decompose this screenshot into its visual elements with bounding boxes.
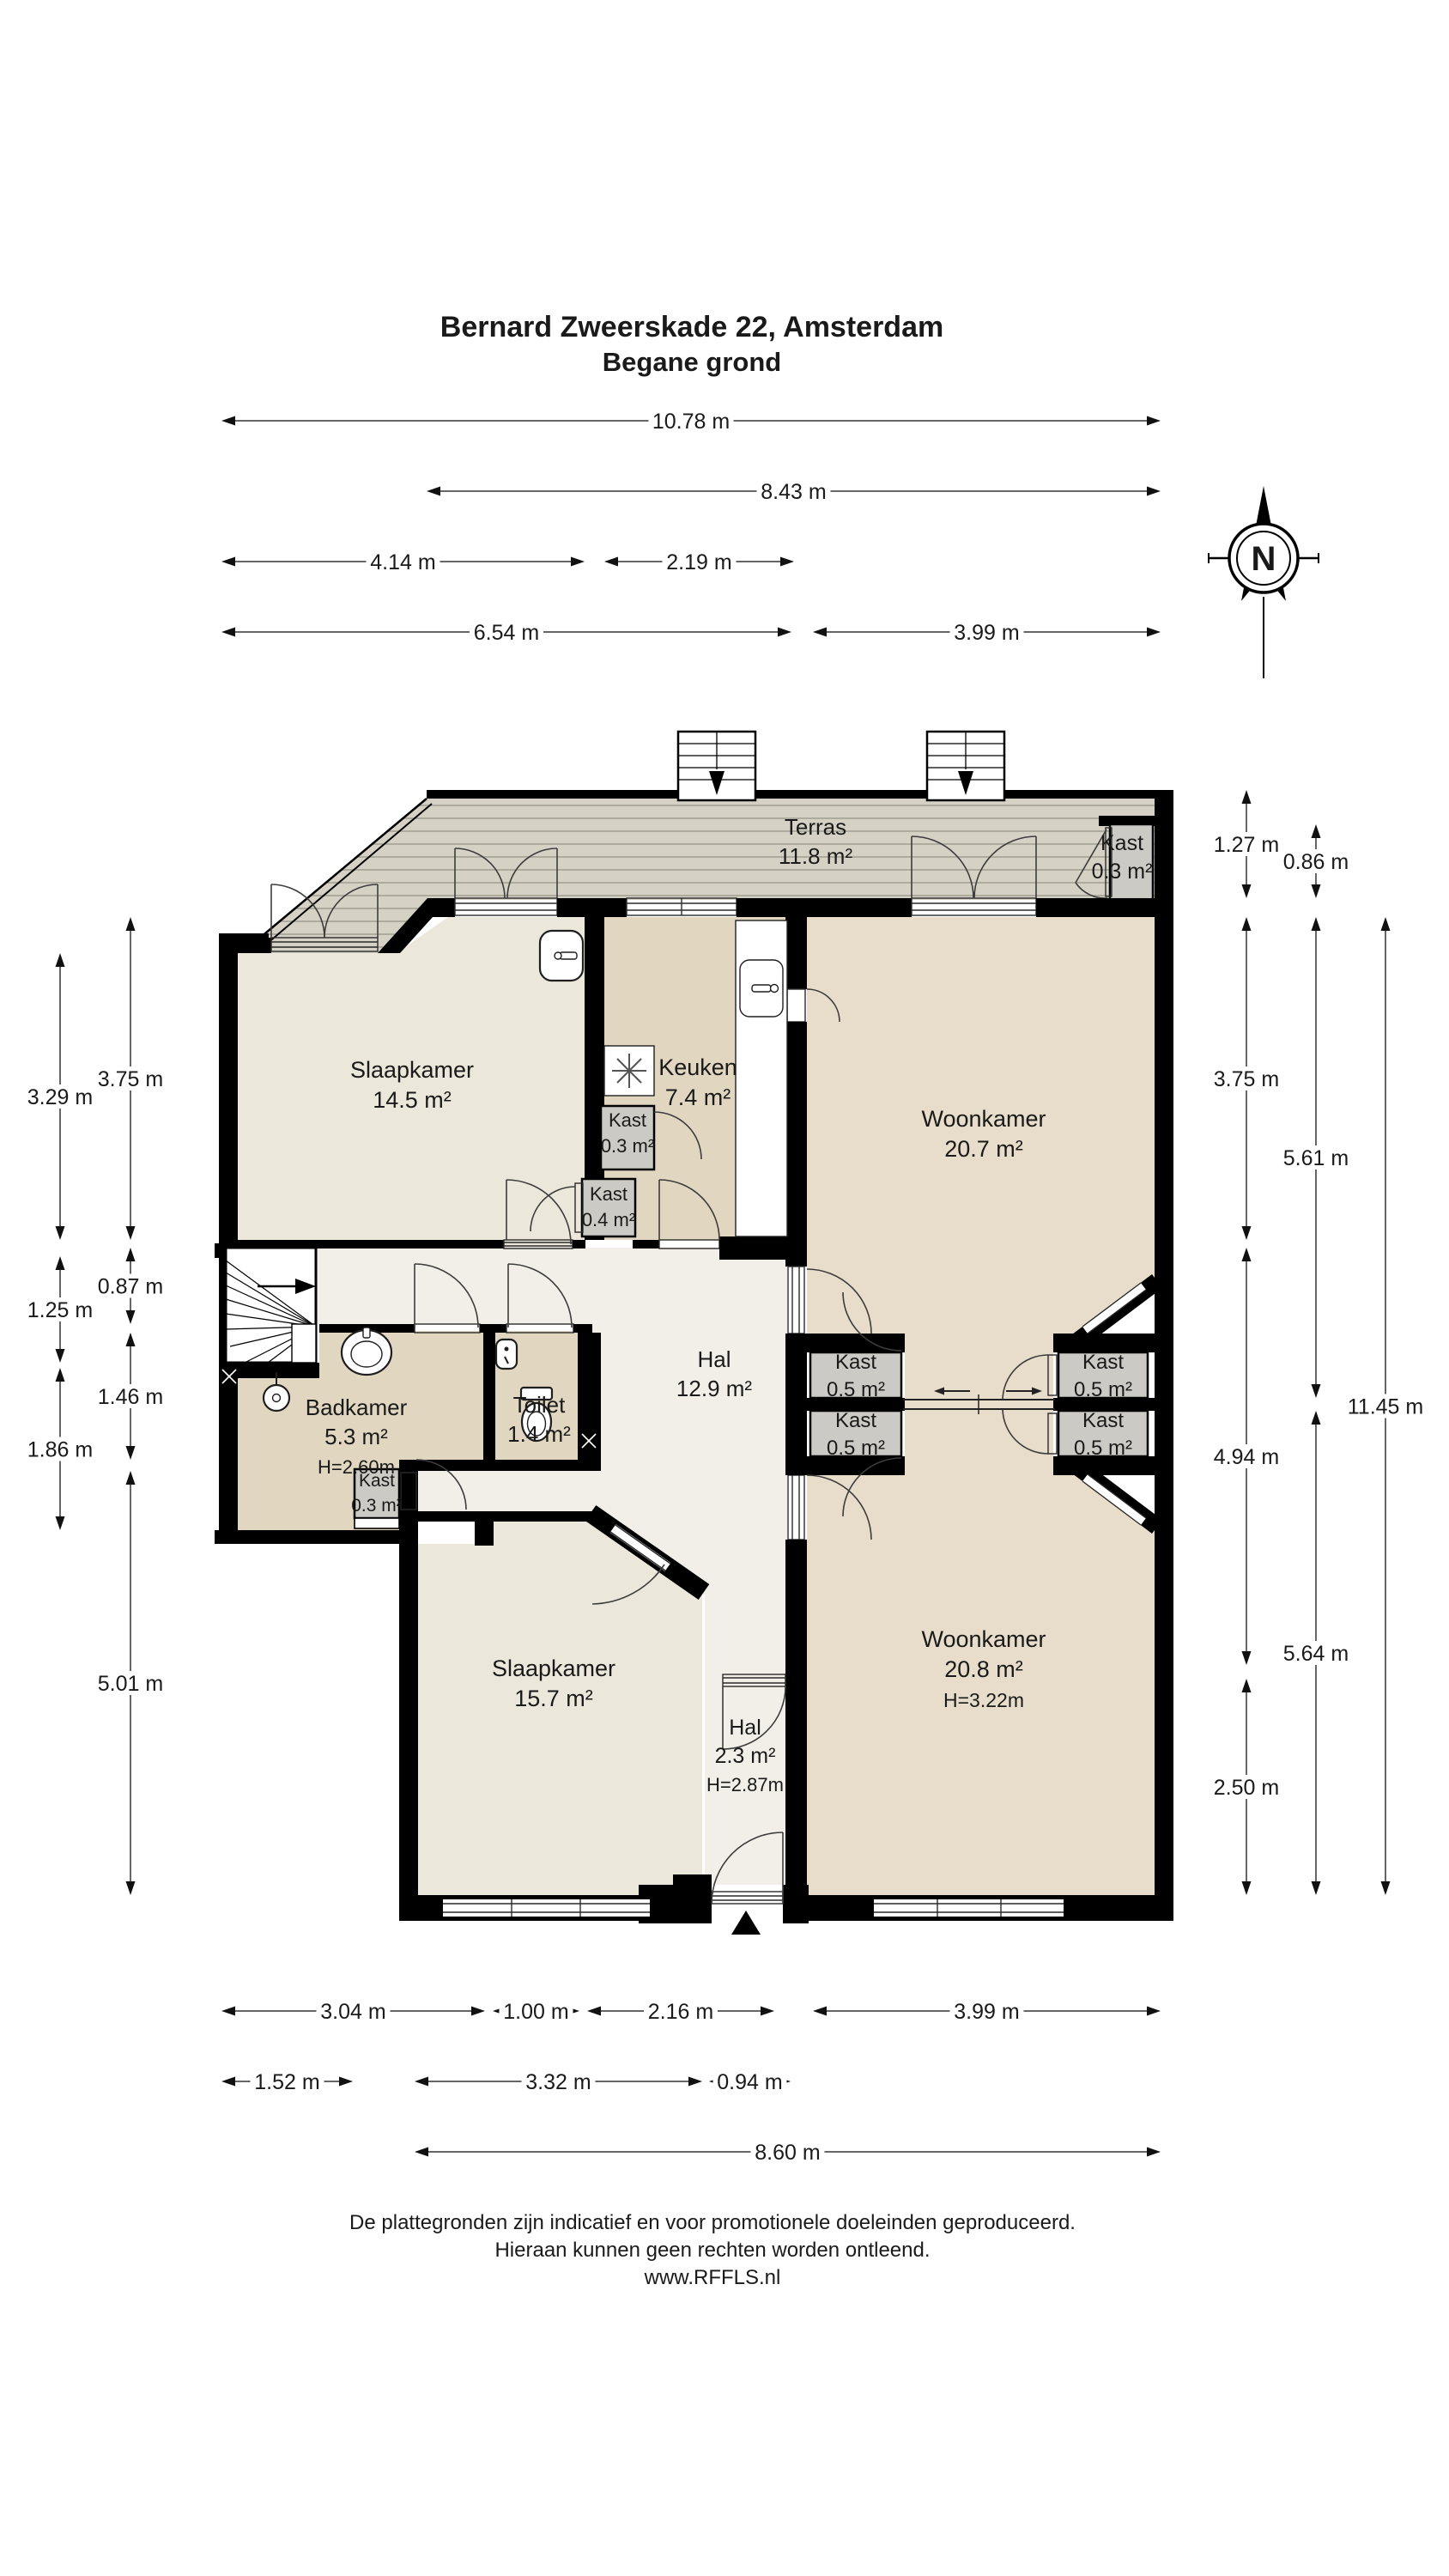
dimension: 6.54 m [221, 620, 791, 645]
room-label-kast-05-links-onder: 0.5 m² [827, 1437, 885, 1460]
dimension: 1.00 m [493, 1999, 579, 2024]
wall-badkamer-toilet [483, 1333, 495, 1460]
slaapkamer-onder-window [443, 1899, 650, 1917]
room-label-kast-05-rechts-boven: 0.5 m² [1074, 1378, 1132, 1401]
dimension: 3.04 m [221, 1999, 485, 2024]
room-label-hal-onder: H=2.87m [706, 1774, 784, 1795]
dimension-label: 0.94 m [717, 2070, 782, 2094]
room-label-kast-05-links-boven: Kast [835, 1351, 876, 1374]
room-label-kast-03-keuken: Kast [609, 1109, 646, 1131]
dimension-label: 5.61 m [1283, 1146, 1349, 1170]
toilet-roll-holder [496, 1340, 517, 1369]
dimension: 5.01 m [94, 1471, 167, 1895]
plan-title: Bernard Zweerskade 22, Amsterdam Begane … [440, 311, 943, 377]
dimension-label: 1.00 m [503, 2000, 568, 2024]
room-label-kast-03-badkamer: Kast [359, 1471, 395, 1491]
terrace-stair-right [927, 732, 1004, 800]
room-label-hal-onder: 2.3 m² [715, 1744, 776, 1768]
room-label-kast-05-rechts-onder: Kast [1082, 1409, 1124, 1432]
footer-line-1: De plattegronden zijn indicatief en voor… [349, 2211, 1076, 2234]
room-label-keuken: 7.4 m² [665, 1084, 731, 1110]
dimension-label: 8.60 m [755, 2141, 820, 2165]
dimension: 3.99 m [813, 620, 1161, 645]
title-address: Bernard Zweerskade 22, Amsterdam [440, 311, 943, 343]
dimension: 1.25 m [23, 1256, 97, 1363]
room-label-kast-03-badkamer: 0.3 m² [351, 1496, 403, 1516]
terrace-stair-left [678, 732, 755, 800]
room-label-hal-onder: Hal [729, 1716, 761, 1740]
dimension: 8.43 m [427, 479, 1161, 504]
room-label-terras: Terras [785, 814, 846, 840]
dimension: 1.27 m [1210, 790, 1283, 898]
hal-woonkamer-onder-door-frame [788, 1475, 804, 1540]
dimension: 2.50 m [1210, 1679, 1283, 1895]
dimension: 3.29 m [23, 953, 97, 1240]
dimension-label: 0.87 m [98, 1275, 163, 1299]
dimension-label: 1.86 m [27, 1438, 93, 1462]
dimension: 1.52 m [221, 2069, 353, 2094]
dimension-label: 1.52 m [254, 2070, 319, 2094]
room-label-slaapkamer-boven: 14.5 m² [373, 1087, 452, 1113]
french-door-sill-bedroom [455, 898, 557, 915]
dimension: 4.94 m [1210, 1248, 1283, 1665]
title-floor: Begane grond [603, 347, 781, 377]
terrace-top-wall [427, 790, 1159, 799]
room-label-woonkamer-onder: 20.8 m² [944, 1656, 1023, 1682]
left-wall [219, 933, 238, 1544]
woonkamer-onder-floor [807, 1470, 1155, 1895]
dimension: 2.16 m [587, 1999, 774, 2024]
dimension-label: 2.50 m [1214, 1776, 1279, 1800]
dimension: 5.61 m [1279, 917, 1353, 1398]
room-label-terras: 11.8 m² [779, 843, 853, 869]
room-label-slaapkamer-onder: 15.7 m² [514, 1686, 593, 1711]
dimension-label: 5.64 m [1283, 1642, 1349, 1666]
dimension-label: 1.27 m [1214, 833, 1279, 857]
room-label-hal-midden: 12.9 m² [676, 1376, 752, 1401]
dimension: 3.75 m [94, 917, 167, 1240]
footer-website-link[interactable]: www.RFFLS.nl [644, 2266, 781, 2289]
room-label-woonkamer-boven: Woonkamer [921, 1106, 1046, 1132]
dimension-label: 6.54 m [474, 621, 539, 645]
compass-north-label: N [1252, 540, 1276, 578]
dimension-label: 3.75 m [1214, 1067, 1279, 1091]
hal-woonkamer-boven-door-frame [788, 1267, 804, 1334]
dimension: 1.86 m [23, 1368, 97, 1530]
room-label-woonkamer-onder: Woonkamer [921, 1626, 1046, 1652]
room-label-slaapkamer-onder: Slaapkamer [492, 1656, 615, 1681]
compass: N [1209, 486, 1319, 678]
room-label-badkamer: Badkamer [306, 1394, 408, 1420]
room-label-badkamer: 5.3 m² [324, 1424, 388, 1449]
floorplan-page: Bernard Zweerskade 22, Amsterdam Begane … [0, 0, 1449, 2576]
room-label-woonkamer-boven: 20.7 m² [944, 1136, 1023, 1162]
dimension-label: 3.99 m [954, 2000, 1019, 2024]
vent-symbol-toilet [580, 1432, 597, 1449]
dimension: 0.94 m [709, 2069, 791, 2094]
french-door-sill-woonkamer [912, 898, 1036, 915]
room-label-kast-04: Kast [590, 1183, 627, 1205]
woonkamer-onder-window [874, 1899, 1064, 1917]
dimension-label: 3.75 m [98, 1067, 163, 1091]
room-label-toilet: Toilet [513, 1392, 566, 1418]
room-label-hal-midden: Hal [697, 1346, 731, 1372]
dimension-label: 1.25 m [27, 1298, 93, 1322]
dimension: 4.14 m [221, 550, 585, 574]
hal-onder-floor [705, 1588, 785, 1895]
dimension-label: 5.01 m [98, 1672, 163, 1696]
dimension-label: 3.04 m [320, 2000, 385, 2024]
room-label-slaapkamer-boven: Slaapkamer [350, 1057, 474, 1083]
dimension-label: 3.29 m [27, 1085, 93, 1109]
footer-line-2: Hieraan kunnen geen rechten worden ontle… [494, 2239, 930, 2262]
keuken-woonkamer-door-frame [787, 989, 805, 1022]
dimension: 0.86 m [1279, 824, 1353, 898]
dimension-label: 10.78 m [652, 410, 730, 434]
dimension: 3.32 m [415, 2069, 702, 2094]
dimension: 2.19 m [604, 550, 794, 574]
stove-symbol [604, 1046, 654, 1096]
dimension: 5.64 m [1279, 1411, 1353, 1895]
hall-stairs [226, 1248, 316, 1363]
right-wall [1155, 790, 1173, 1921]
toilet-right-wall [578, 1333, 601, 1471]
dimension-label: 2.19 m [666, 550, 731, 574]
dimension: 3.75 m [1210, 917, 1283, 1240]
dimension: 10.78 m [221, 409, 1161, 434]
dimension-label: 0.86 m [1283, 850, 1349, 874]
dimension-label: 3.99 m [954, 621, 1019, 645]
room-label-kast-04: 0.4 m² [582, 1209, 635, 1230]
dimension-label: 4.14 m [370, 550, 435, 574]
dimension-label: 11.45 m [1348, 1395, 1423, 1419]
footer-disclaimer: De plattegronden zijn indicatief en voor… [349, 2211, 1076, 2289]
dimension-label: 4.94 m [1214, 1445, 1279, 1469]
dimension: 0.87 m [94, 1248, 167, 1324]
dimension-label: 8.43 m [761, 480, 826, 504]
room-label-kast-05-rechts-onder: 0.5 m² [1074, 1437, 1132, 1460]
room-label-kast-05-rechts-boven: Kast [1082, 1351, 1124, 1374]
vent-symbol-badkamer [221, 1368, 238, 1385]
room-label-kast-terras: 0.3 m² [1092, 860, 1153, 884]
room-label-kast-03-keuken: 0.3 m² [601, 1135, 654, 1157]
dimension-label: 3.32 m [525, 2070, 591, 2094]
room-label-kast-terras: Kast [1100, 831, 1143, 855]
keuken-door-frame [659, 1240, 719, 1249]
dimension: 11.45 m [1343, 917, 1428, 1895]
hal-floor-notch [416, 1471, 592, 1511]
dimension: 8.60 m [415, 2140, 1161, 2165]
dimension-label: 1.46 m [98, 1385, 163, 1409]
room-label-toilet: 1.4 m² [507, 1421, 571, 1447]
room-label-keuken: Keuken [658, 1054, 737, 1080]
slaapkamer-onder-left-wall [399, 1471, 418, 1895]
dimension: 1.46 m [94, 1333, 167, 1460]
room-label-woonkamer-onder: H=3.22m [943, 1689, 1024, 1711]
dimension: 3.99 m [813, 1999, 1161, 2024]
room-label-kast-05-links-boven: 0.5 m² [827, 1378, 885, 1401]
room-label-kast-05-links-onder: Kast [835, 1409, 876, 1432]
dimension-label: 2.16 m [648, 2000, 713, 2024]
